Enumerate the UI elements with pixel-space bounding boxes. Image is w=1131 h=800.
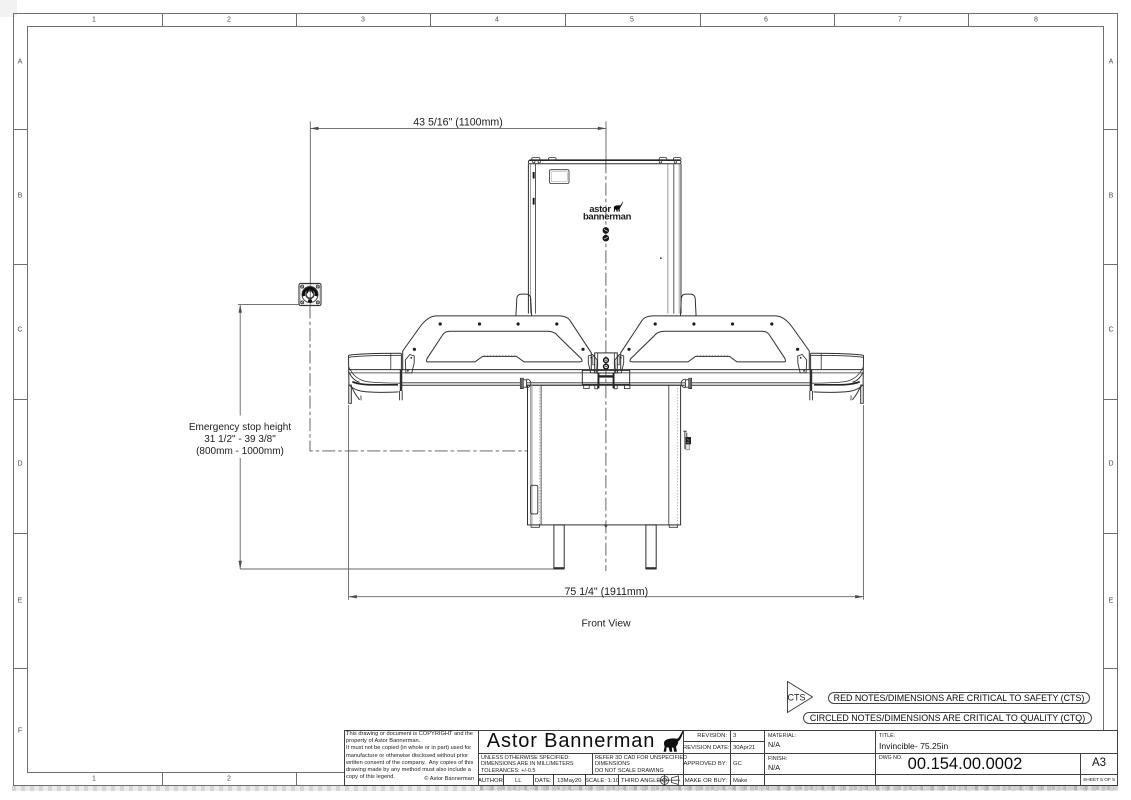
svg-text:Front View: Front View (581, 618, 631, 629)
svg-text:bannerman: bannerman (583, 212, 632, 223)
svg-text:Emergency stop height: Emergency stop height (189, 422, 292, 433)
svg-text:43 5/16" (1100mm): 43 5/16" (1100mm) (413, 116, 503, 128)
svg-text:75 1/4" (1911mm): 75 1/4" (1911mm) (564, 586, 648, 598)
svg-text:(800mm - 1000mm): (800mm - 1000mm) (196, 446, 284, 457)
svg-text:31 1/2" - 39 3/8": 31 1/2" - 39 3/8" (204, 434, 276, 445)
